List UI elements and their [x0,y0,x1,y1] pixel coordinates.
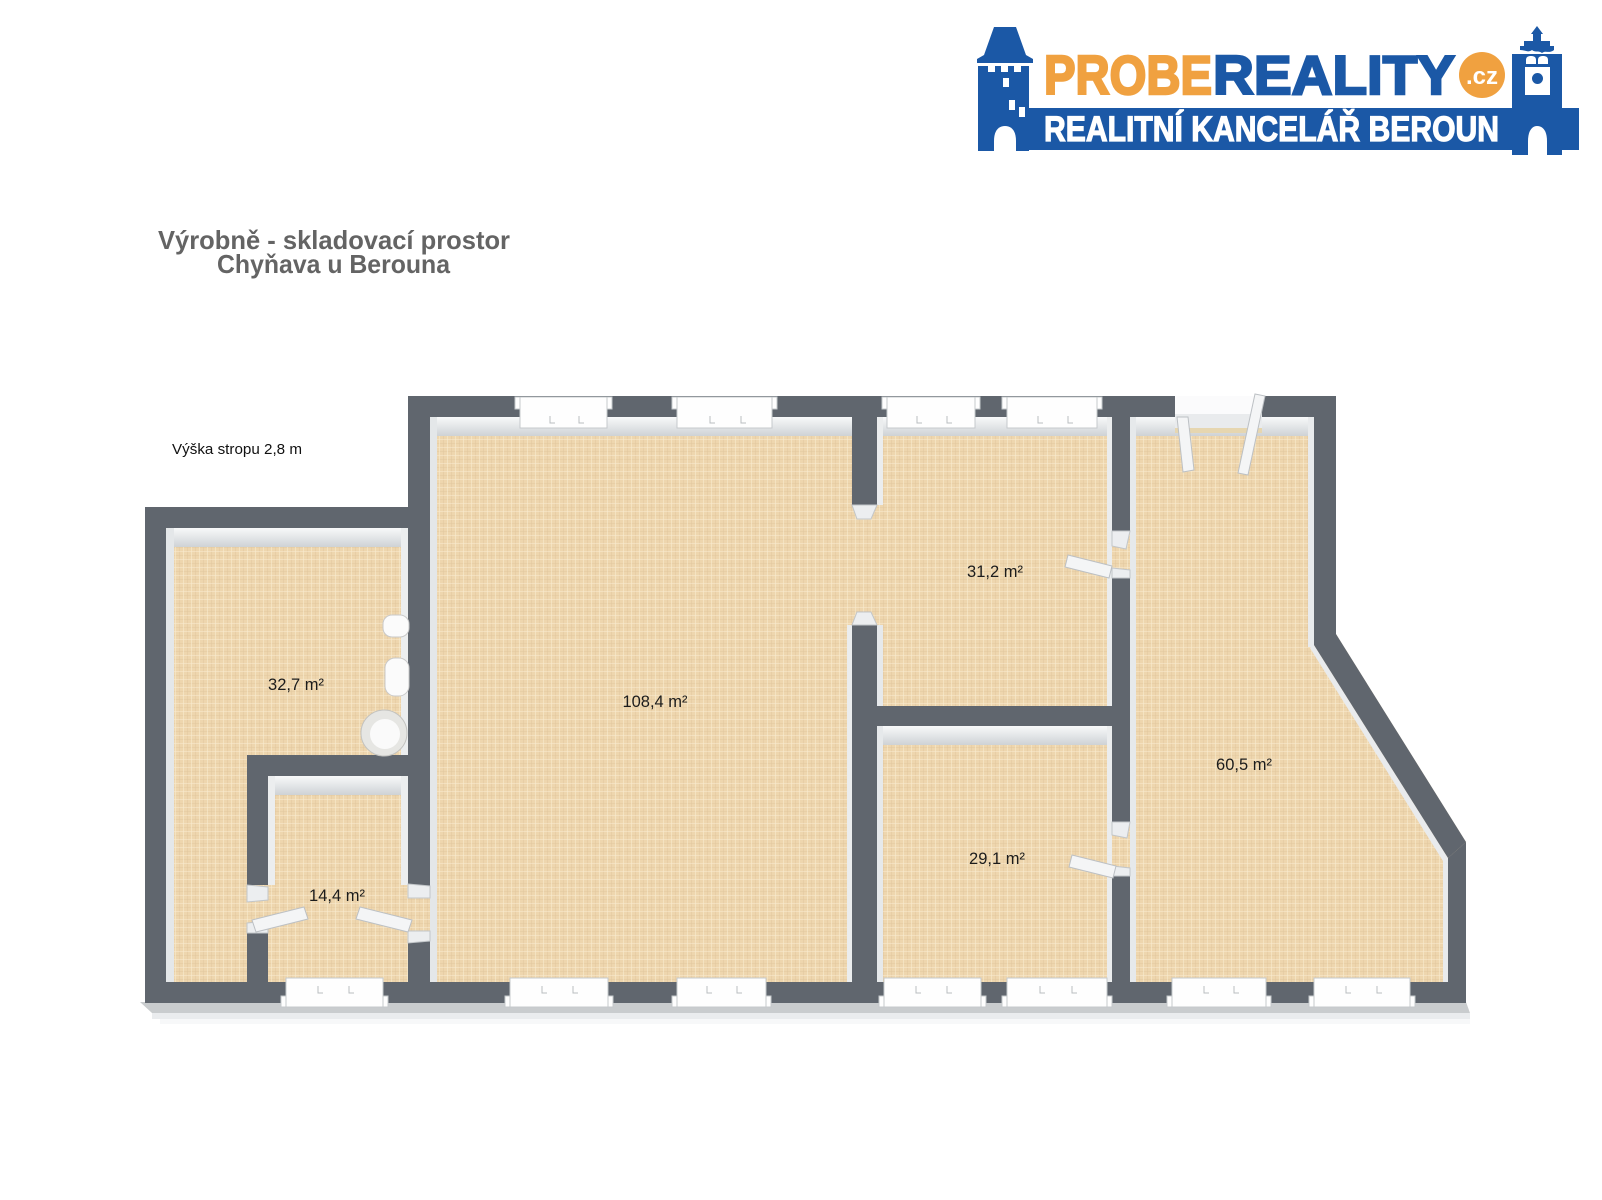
svg-text:.cz: .cz [1466,63,1498,90]
svg-text:REALITNÍ KANCELÁŘ BEROUN: REALITNÍ KANCELÁŘ BEROUN [1044,109,1499,149]
svg-text:14,4 m²: 14,4 m² [309,887,365,905]
svg-text:REALITY: REALITY [1213,44,1455,106]
svg-text:108,4 m²: 108,4 m² [622,693,688,711]
svg-text:PROBE: PROBE [1044,44,1212,106]
svg-text:32,7 m²: 32,7 m² [268,676,324,694]
svg-text:Výška stropu 2,8 m: Výška stropu 2,8 m [172,441,302,458]
svg-text:60,5 m²: 60,5 m² [1216,756,1272,774]
svg-text:Chyňava u Berouna: Chyňava u Berouna [217,249,451,279]
svg-text:29,1 m²: 29,1 m² [969,850,1025,868]
svg-text:31,2 m²: 31,2 m² [967,563,1023,581]
